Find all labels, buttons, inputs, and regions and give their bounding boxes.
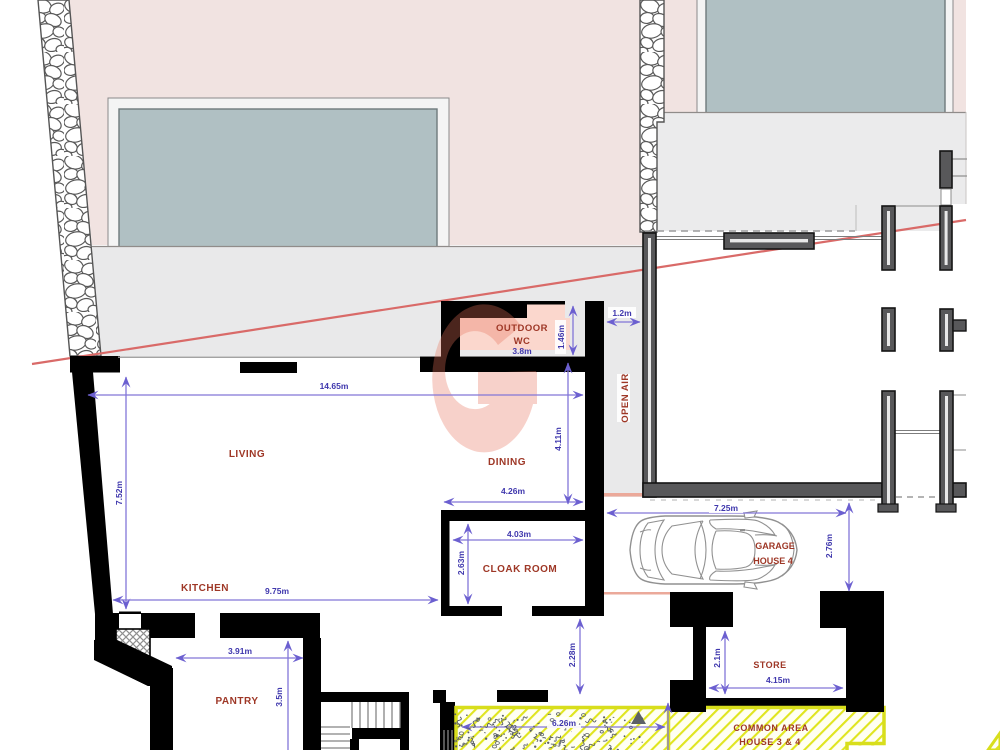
svg-text:7.25m: 7.25m (714, 503, 739, 513)
svg-text:CLOAK ROOM: CLOAK ROOM (483, 564, 557, 575)
svg-text:LIVING: LIVING (229, 449, 265, 460)
svg-text:OUTDOOR: OUTDOOR (496, 323, 548, 334)
svg-text:PANTRY: PANTRY (216, 696, 259, 707)
svg-text:KITCHEN: KITCHEN (181, 583, 229, 594)
svg-text:STORE: STORE (753, 660, 786, 670)
svg-text:7.52m: 7.52m (114, 481, 124, 506)
svg-text:4.03m: 4.03m (507, 529, 532, 539)
svg-text:4.11m: 4.11m (553, 427, 563, 451)
svg-text:3.8m: 3.8m (512, 346, 532, 356)
svg-text:COMMON AREA: COMMON AREA (733, 723, 808, 733)
svg-text:6.26m: 6.26m (552, 718, 577, 728)
svg-text:2.63m: 2.63m (456, 551, 466, 576)
svg-text:HOUSE 3 & 4: HOUSE 3 & 4 (739, 737, 801, 747)
svg-text:3.5m: 3.5m (274, 687, 284, 707)
svg-text:WC: WC (514, 336, 531, 347)
svg-text:HOUSE 4: HOUSE 4 (753, 556, 793, 566)
svg-text:4.26m: 4.26m (501, 486, 526, 496)
svg-text:GARAGE: GARAGE (755, 541, 795, 551)
svg-text:2.76m: 2.76m (824, 534, 834, 559)
svg-text:2.1m: 2.1m (712, 648, 722, 668)
svg-text:9.75m: 9.75m (265, 586, 290, 596)
svg-text:OPEN AIR: OPEN AIR (620, 373, 631, 423)
svg-text:14.65m: 14.65m (320, 381, 349, 391)
svg-text:2.28m: 2.28m (567, 643, 577, 668)
svg-text:DINING: DINING (488, 457, 526, 468)
svg-text:4.15m: 4.15m (766, 675, 791, 685)
svg-text:1.46m: 1.46m (556, 325, 566, 350)
svg-text:1.2m: 1.2m (612, 308, 632, 318)
svg-text:3.91m: 3.91m (228, 646, 253, 656)
